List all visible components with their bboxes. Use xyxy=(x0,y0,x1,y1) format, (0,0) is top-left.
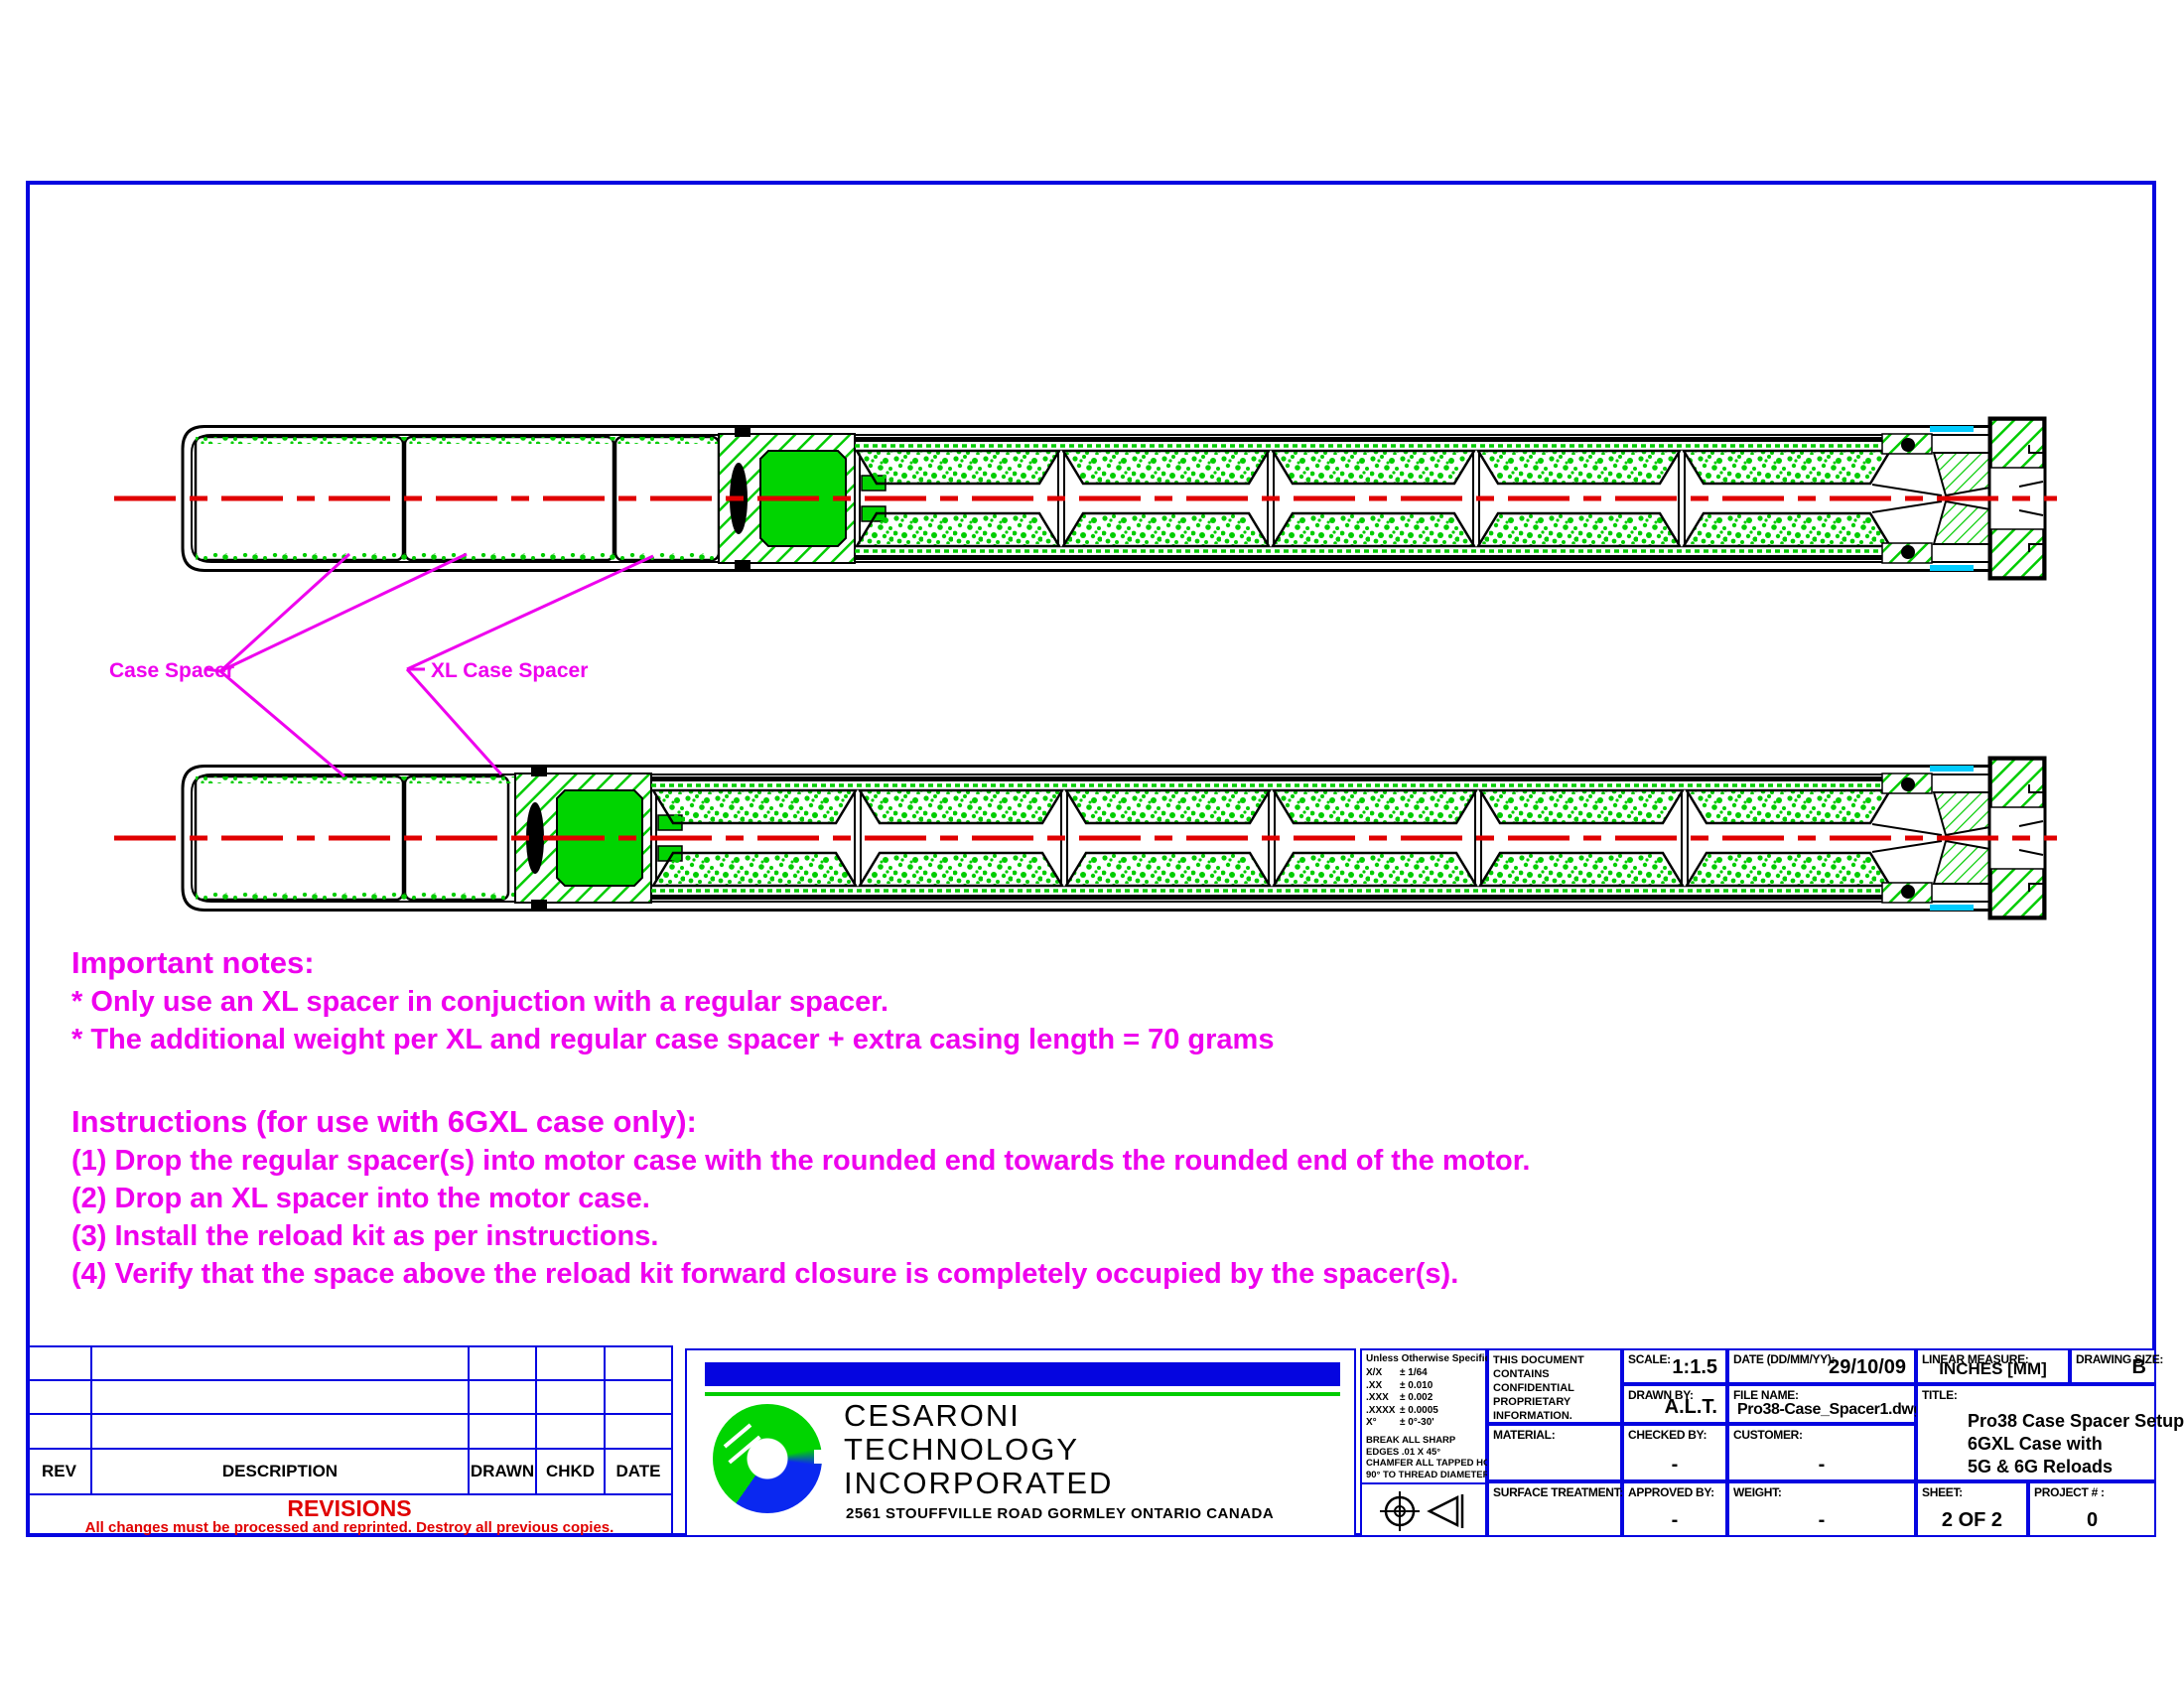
customer-cell: CUSTOMER: - xyxy=(1727,1424,1916,1481)
company-name-line3: INCORPORATED xyxy=(844,1468,1113,1499)
tol-sym: .XX xyxy=(1366,1380,1400,1393)
title-line: 6GXL Case with xyxy=(1968,1433,2184,1456)
date-value: 29/10/09 xyxy=(1829,1356,1906,1379)
title-line: Pro38 Case Spacer Setup xyxy=(1968,1410,2184,1433)
upper-motor-assembly-drawing xyxy=(114,418,2057,579)
weight-value: - xyxy=(1729,1509,1914,1532)
seal-o-ring-cyan xyxy=(1930,426,1974,432)
drawing-size-label: DRAWING SIZE: xyxy=(2076,1352,2163,1366)
rev-cell xyxy=(604,1413,673,1450)
title-label: TITLE: xyxy=(1922,1388,1958,1402)
tol-sym: .XXX xyxy=(1366,1392,1400,1405)
sheet-cell: SHEET: 2 OF 2 xyxy=(1916,1481,2028,1537)
company-name-line2: TECHNOLOGY xyxy=(844,1434,1079,1466)
scale-value: 1:1.5 xyxy=(1672,1356,1717,1379)
rev-cell xyxy=(90,1413,470,1450)
note-line: * The additional weight per XL and regul… xyxy=(71,1021,1530,1058)
tol-val: ± 0.0005 xyxy=(1400,1405,1438,1418)
logo-green-line xyxy=(705,1392,1340,1396)
customer-label: CUSTOMER: xyxy=(1733,1428,1803,1442)
tolerance-rows: X/X± 1/64 .XX± 0.010 .XXX± 0.002 .XXXX± … xyxy=(1366,1367,1438,1430)
weight-label: WEIGHT: xyxy=(1733,1485,1782,1499)
material-label: MATERIAL: xyxy=(1493,1428,1555,1442)
checked-by-label: CHECKED BY: xyxy=(1628,1428,1706,1442)
confidential-cell: THIS DOCUMENT CONTAINS CONFIDENTIAL PROP… xyxy=(1487,1348,1622,1424)
tolerance-block: Unless Otherwise Specified X/X± 1/64 .XX… xyxy=(1360,1348,1487,1537)
date-label: DATE (DD/MM/YY): xyxy=(1733,1352,1835,1366)
liner-strip xyxy=(196,893,515,900)
rev-cell xyxy=(468,1379,537,1415)
checked-by-cell: CHECKED BY: - xyxy=(1622,1424,1727,1481)
spacer xyxy=(71,1058,1530,1102)
rev-cell xyxy=(535,1413,606,1450)
instructions-heading: Instructions (for use with 6GXL case onl… xyxy=(71,1102,1530,1142)
rev-cell xyxy=(604,1379,673,1415)
drawn-by-cell: DRAWN BY: A.L.T. xyxy=(1622,1384,1727,1424)
leader-line xyxy=(407,669,501,774)
scale-cell: SCALE: 1:1.5 xyxy=(1622,1348,1727,1384)
notes-block: Important notes: * Only use an XL spacer… xyxy=(71,943,1530,1293)
revisions-warning: All changes must be processed and reprin… xyxy=(28,1520,671,1535)
rev-cell xyxy=(468,1413,537,1450)
cesaroni-c-logo-icon xyxy=(713,1404,822,1513)
instruction-line: (2) Drop an XL spacer into the motor cas… xyxy=(71,1180,1530,1217)
rev-cell xyxy=(90,1379,470,1415)
project-number-label: PROJECT # : xyxy=(2034,1485,2105,1499)
drawn-by-value: A.L.T. xyxy=(1665,1396,1717,1419)
title-line: 5G & 6G Reloads xyxy=(1968,1456,2184,1478)
project-number-cell: PROJECT # : 0 xyxy=(2028,1481,2156,1537)
company-address: 2561 STOUFFVILLE ROAD GORMLEY ONTARIO CA… xyxy=(846,1505,1274,1522)
tol-sym: .XXXX xyxy=(1366,1405,1400,1418)
note-line: * Only use an XL spacer in conjuction wi… xyxy=(71,983,1530,1021)
o-ring xyxy=(1901,777,1915,791)
file-name-label: FILE NAME: xyxy=(1733,1388,1799,1402)
linear-measure-cell: LINEAR MEASURE: INCHES [MM] xyxy=(1916,1348,2070,1384)
tol-sym: X/X xyxy=(1366,1367,1400,1380)
tol-val: ± 0.002 xyxy=(1400,1392,1433,1405)
scale-label: SCALE: xyxy=(1628,1352,1671,1366)
lower-motor-assembly-drawing xyxy=(114,758,2057,918)
liner xyxy=(651,895,1892,900)
rev-header-description: DESCRIPTION xyxy=(90,1448,470,1495)
liner xyxy=(855,437,1892,442)
rev-header-date: DATE xyxy=(604,1448,673,1495)
instruction-line: (4) Verify that the space above the relo… xyxy=(71,1255,1530,1293)
engineering-drawing-page: { "drawing_labels": { "case_spacer": "Ca… xyxy=(0,0,2184,1688)
logo-blue-bar xyxy=(705,1362,1340,1386)
file-name-value: Pro38-Case_Spacer1.dwg xyxy=(1737,1401,1923,1419)
rev-header-chkd: CHKD xyxy=(535,1448,606,1495)
projection-symbol-cell xyxy=(1362,1482,1485,1537)
liner-strip xyxy=(196,437,719,444)
o-ring xyxy=(1901,885,1915,899)
seal-o-ring-cyan xyxy=(1930,905,1974,911)
tolerance-heading: Unless Otherwise Specified xyxy=(1366,1353,1496,1366)
important-notes-heading: Important notes: xyxy=(71,943,1530,983)
tol-val: ± 0°-30' xyxy=(1400,1417,1434,1430)
seal-o-ring-cyan xyxy=(1930,766,1974,772)
approved-by-value: - xyxy=(1624,1509,1725,1532)
leader-line xyxy=(407,556,653,669)
revisions-warning-band: REVISIONS All changes must be processed … xyxy=(26,1493,673,1537)
instruction-line: (1) Drop the regular spacer(s) into moto… xyxy=(71,1142,1530,1180)
surface-treatment-cell: SURFACE TREATMENT: xyxy=(1487,1481,1622,1537)
third-angle-projection-icon xyxy=(1362,1484,1485,1537)
drawing-title: Pro38 Case Spacer Setup 6GXL Case with 5… xyxy=(1968,1410,2184,1478)
approved-by-cell: APPROVED BY: - xyxy=(1622,1481,1727,1537)
approved-by-label: APPROVED BY: xyxy=(1628,1485,1714,1499)
instruction-line: (3) Install the reload kit as per instru… xyxy=(71,1217,1530,1255)
tol-val: ± 1/64 xyxy=(1400,1367,1428,1380)
xl-case-spacer-label: XL Case Spacer xyxy=(431,659,588,682)
file-name-cell: FILE NAME: Pro38-Case_Spacer1.dwg xyxy=(1727,1384,1916,1424)
rev-header-rev: REV xyxy=(26,1448,92,1495)
case-spacer-label: Case Spacer xyxy=(109,659,234,682)
weight-cell: WEIGHT: - xyxy=(1727,1481,1916,1537)
tol-val: ± 0.010 xyxy=(1400,1380,1433,1393)
leader-line xyxy=(220,671,344,776)
rev-cell xyxy=(26,1345,92,1381)
rev-header-drawn: DRAWN xyxy=(468,1448,537,1495)
rev-cell xyxy=(90,1345,470,1381)
customer-value: - xyxy=(1729,1454,1914,1477)
sheet-value: 2 OF 2 xyxy=(1918,1509,2026,1532)
o-ring xyxy=(1901,545,1915,559)
company-block: CESARONI TECHNOLOGY INCORPORATED 2561 ST… xyxy=(685,1348,1356,1537)
rev-cell xyxy=(535,1379,606,1415)
liner-strip xyxy=(196,776,515,783)
sheet-label: SHEET: xyxy=(1922,1485,1963,1499)
liner xyxy=(651,776,1892,781)
rev-cell xyxy=(604,1345,673,1381)
tol-sym: X° xyxy=(1366,1417,1400,1430)
o-ring xyxy=(1901,438,1915,452)
project-number-value: 0 xyxy=(2030,1509,2154,1532)
surface-treatment-label: SURFACE TREATMENT: xyxy=(1493,1485,1623,1499)
rev-cell xyxy=(26,1413,92,1450)
rev-cell xyxy=(535,1345,606,1381)
revisions-title: REVISIONS xyxy=(28,1496,671,1520)
drawing-size-value: B xyxy=(2132,1356,2146,1379)
date-cell: DATE (DD/MM/YY): 29/10/09 xyxy=(1727,1348,1916,1384)
drawing-size-cell: DRAWING SIZE: B xyxy=(2070,1348,2156,1384)
material-cell: MATERIAL: xyxy=(1487,1424,1622,1481)
title-cell: TITLE: Pro38 Case Spacer Setup 6GXL Case… xyxy=(1916,1384,2156,1481)
seal-o-ring-cyan xyxy=(1930,565,1974,571)
rev-cell xyxy=(468,1345,537,1381)
rev-cell xyxy=(26,1379,92,1415)
liner xyxy=(855,555,1892,560)
linear-measure-value: INCHES [MM] xyxy=(1918,1359,2068,1379)
checked-by-value: - xyxy=(1624,1454,1725,1477)
company-name-line1: CESARONI xyxy=(844,1400,1021,1432)
